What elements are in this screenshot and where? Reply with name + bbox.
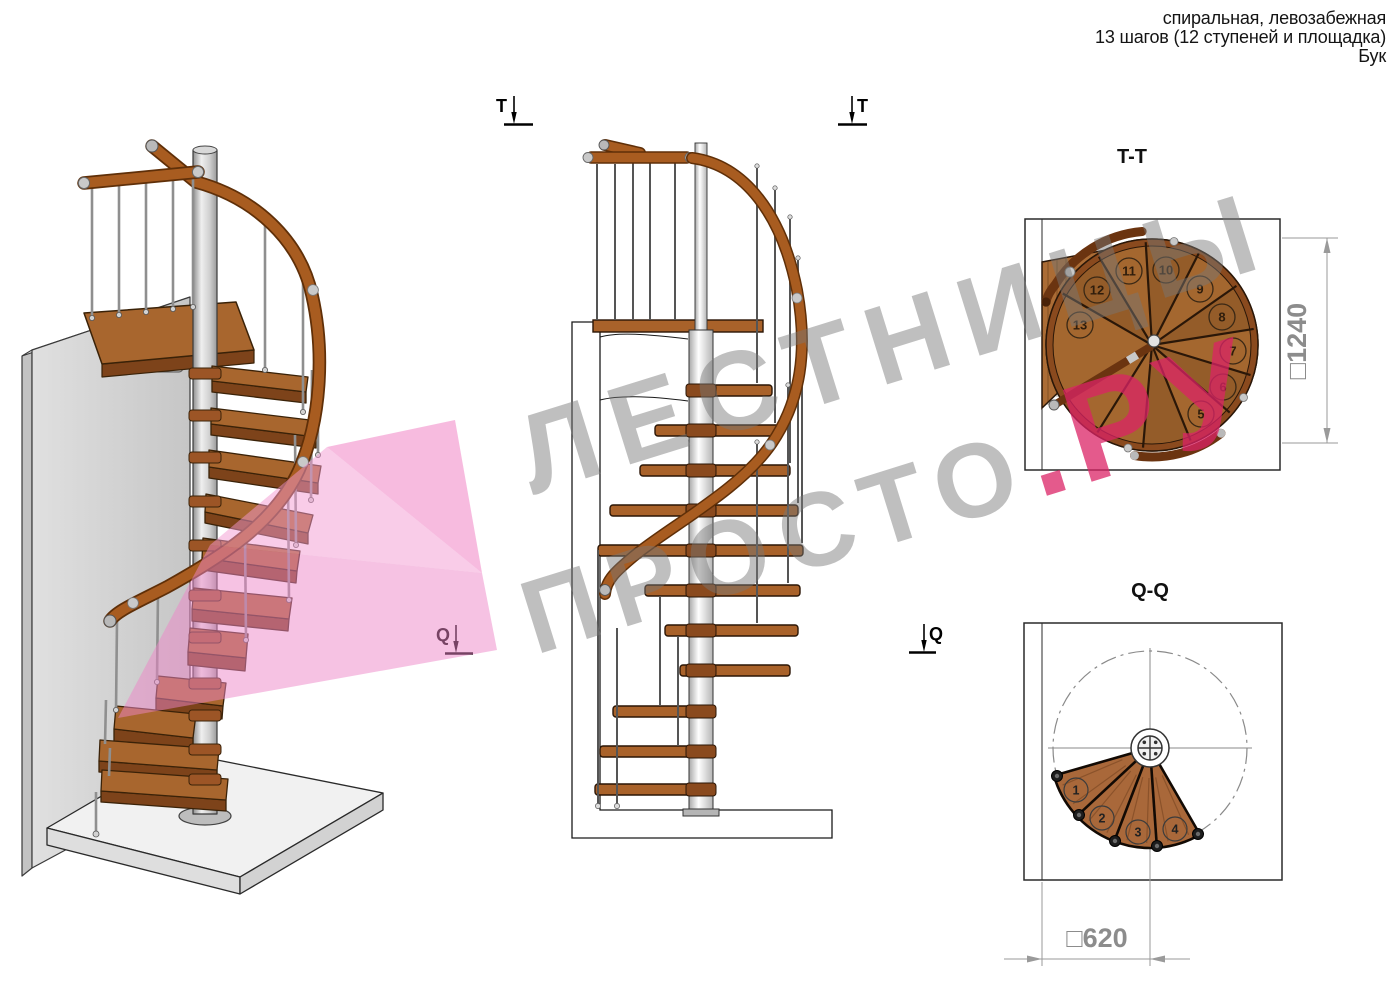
tread [212,366,308,403]
stair-material: Бук [1095,47,1386,66]
svg-text:4: 4 [1172,823,1179,837]
handrail-ferrule [128,598,139,609]
stair-type: спиральная, левозабежная [1095,9,1386,28]
handrail-end-cap [146,140,158,152]
elev-platform [593,320,763,332]
rail-end-cap [78,177,89,188]
svg-text:12: 12 [1090,283,1104,298]
section-marker-q-left: Q [436,625,473,654]
tt-dimension: □1240 [1282,238,1338,443]
qq-center-pole [1131,729,1169,767]
drawing-sheet: 5 6 7 8 9 10 11 12 13 □1240 T-T [0,0,1400,988]
platform-tread [84,302,254,377]
tt-section-view: 5 6 7 8 9 10 11 12 13 □1240 T-T [1025,146,1338,470]
bracket-lines [600,334,688,401]
section-marker-t-right: T [838,96,868,125]
svg-text:1: 1 [1073,784,1080,798]
section-marker-t-left: T [496,96,533,125]
qq-dimension: □620 [1004,852,1190,966]
svg-text:2: 2 [1099,812,1106,826]
handrail-end-cap [104,615,116,627]
elev-top-rail [583,140,695,163]
qq-dimension-label: □620 [1066,923,1127,953]
qq-section-view: 1 2 3 4 □620 Q-Q [1004,580,1282,966]
svg-text:13: 13 [1073,318,1087,333]
svg-text:Q: Q [929,624,943,644]
title-block: спиральная, левозабежная 13 шагов (12 ст… [1095,9,1386,66]
elev-pole-base [683,809,719,816]
rail-end-cap [192,166,203,177]
tt-dimension-label: □1240 [1282,303,1312,379]
railing-balusters [92,175,193,318]
svg-text:3: 3 [1135,826,1142,840]
svg-text:6: 6 [1219,380,1226,395]
elevation-view [572,140,832,838]
handrail-ferrule [308,285,319,296]
svg-text:5: 5 [1197,407,1204,422]
staircase-drawing: 5 6 7 8 9 10 11 12 13 □1240 T-T [0,0,1400,988]
stair-steps-count: 13 шагов (12 ступеней и площадка) [1095,28,1386,47]
svg-text:T: T [857,96,868,116]
wall-side-face [22,350,32,876]
section-marker-q-right: Q [909,624,943,653]
svg-text:Q: Q [436,625,450,645]
svg-text:9: 9 [1196,282,1203,297]
svg-text:T: T [496,96,507,116]
iso-3d-view [22,140,383,894]
platform-railing [78,166,203,320]
elev-post [695,143,707,333]
qq-title: Q-Q [1131,580,1169,602]
tt-title: T-T [1117,146,1147,168]
svg-text:11: 11 [1122,264,1136,279]
svg-text:7: 7 [1229,344,1236,359]
elev-pole [689,330,713,814]
handrail-ferrule [298,457,309,468]
svg-text:10: 10 [1159,263,1173,278]
svg-text:8: 8 [1218,310,1225,325]
